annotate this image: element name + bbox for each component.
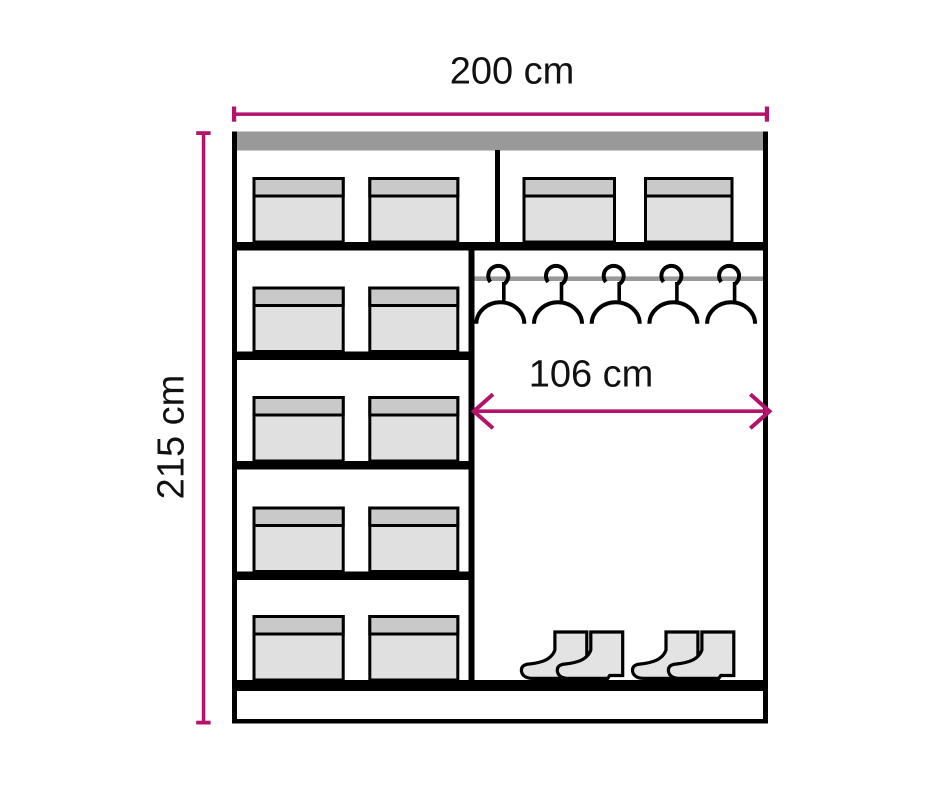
- svg-text:106 cm: 106 cm: [529, 353, 654, 395]
- svg-text:200 cm: 200 cm: [450, 51, 575, 93]
- svg-text:215 cm: 215 cm: [151, 375, 193, 500]
